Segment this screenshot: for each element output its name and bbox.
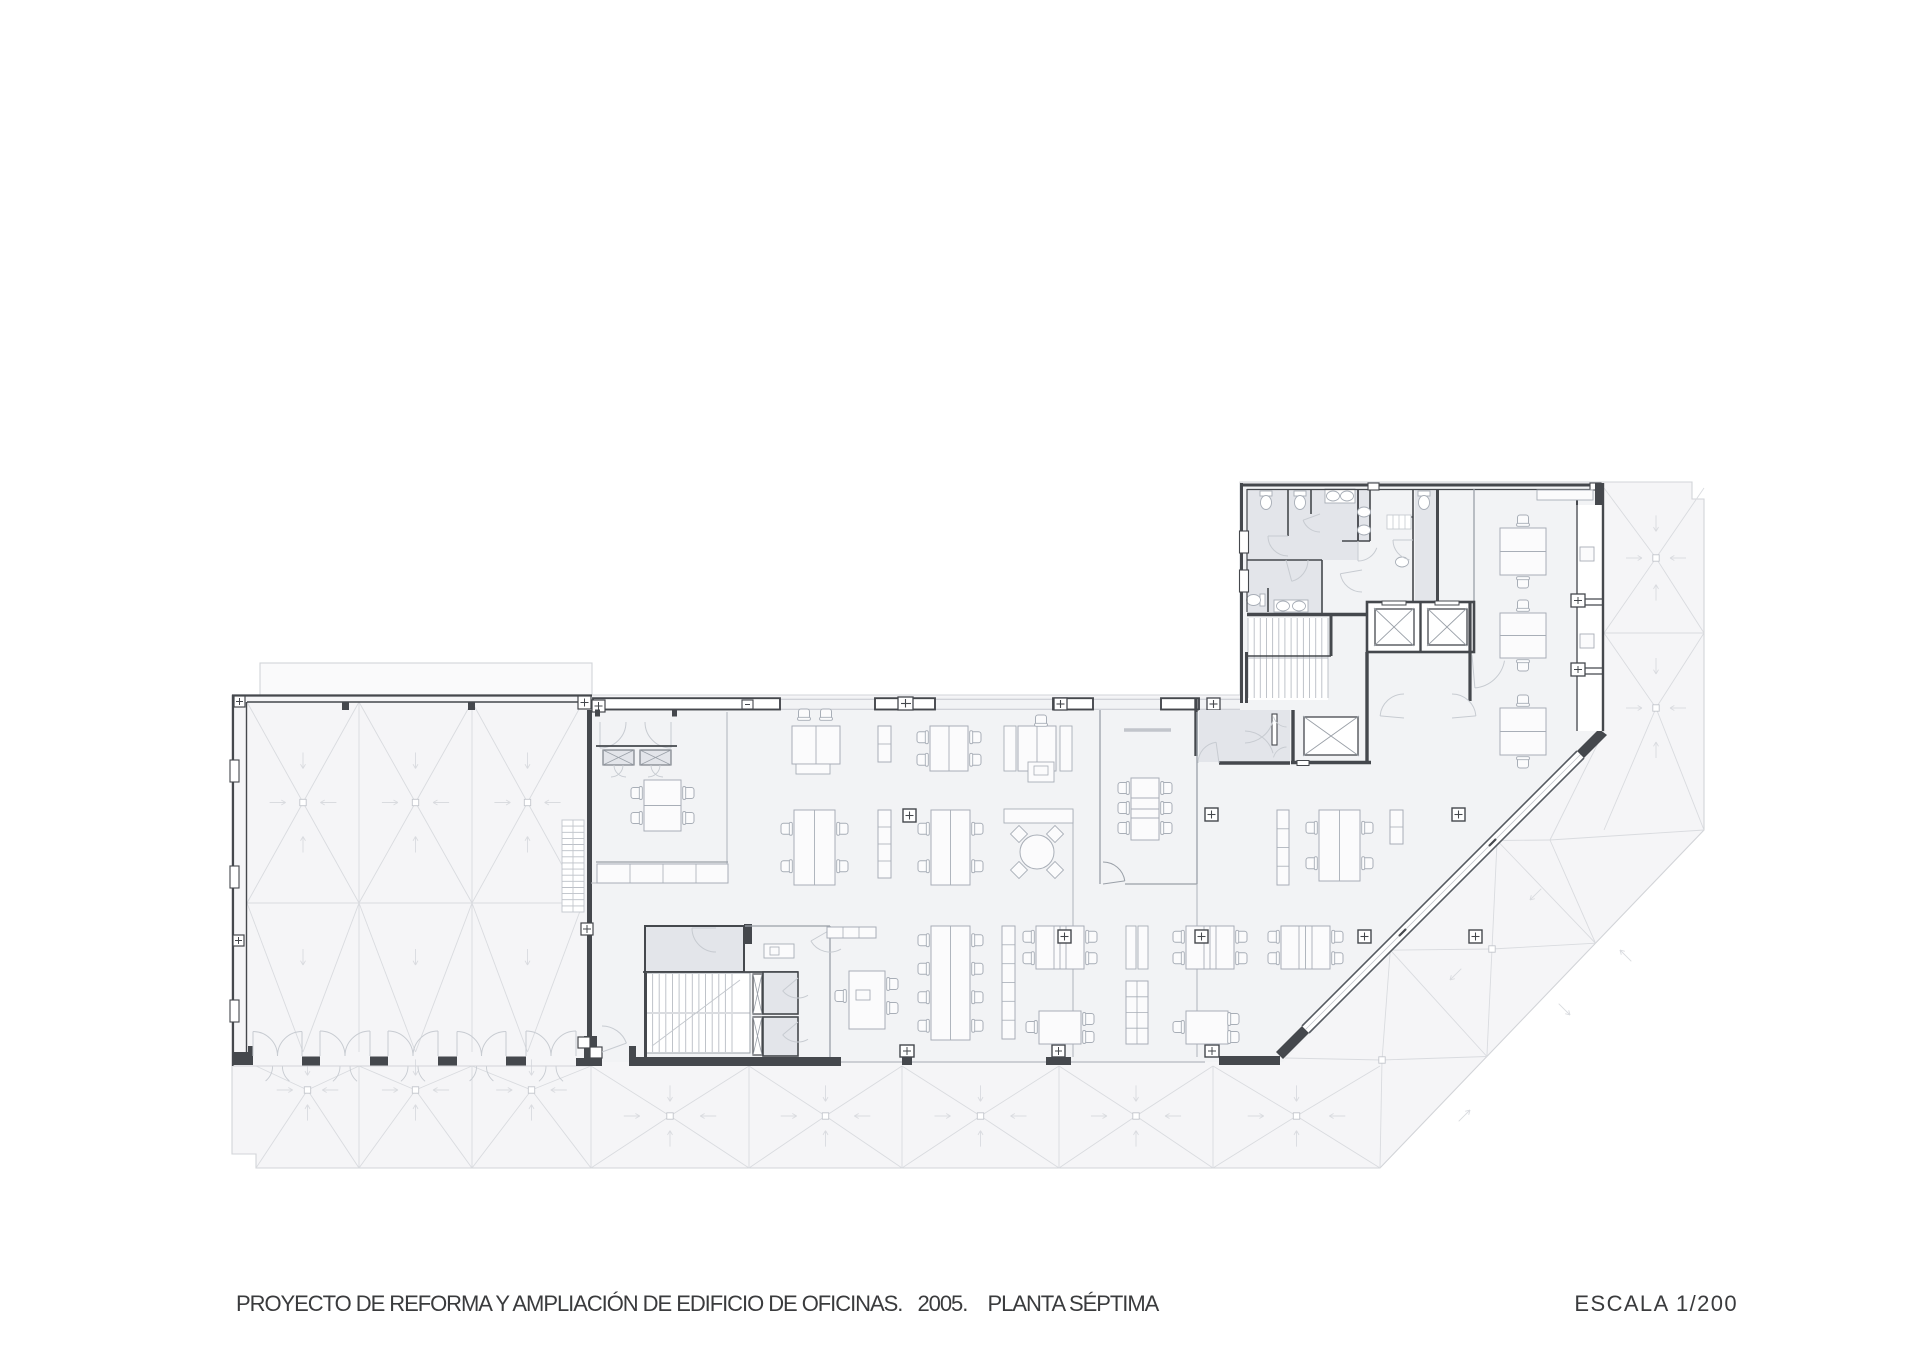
svg-text:ESCALA 1/200: ESCALA 1/200 [1574,1291,1738,1316]
svg-text:PROYECTO DE REFORMA Y AMPLIACI: PROYECTO DE REFORMA Y AMPLIACIÓN DE EDIF… [236,1291,1160,1316]
